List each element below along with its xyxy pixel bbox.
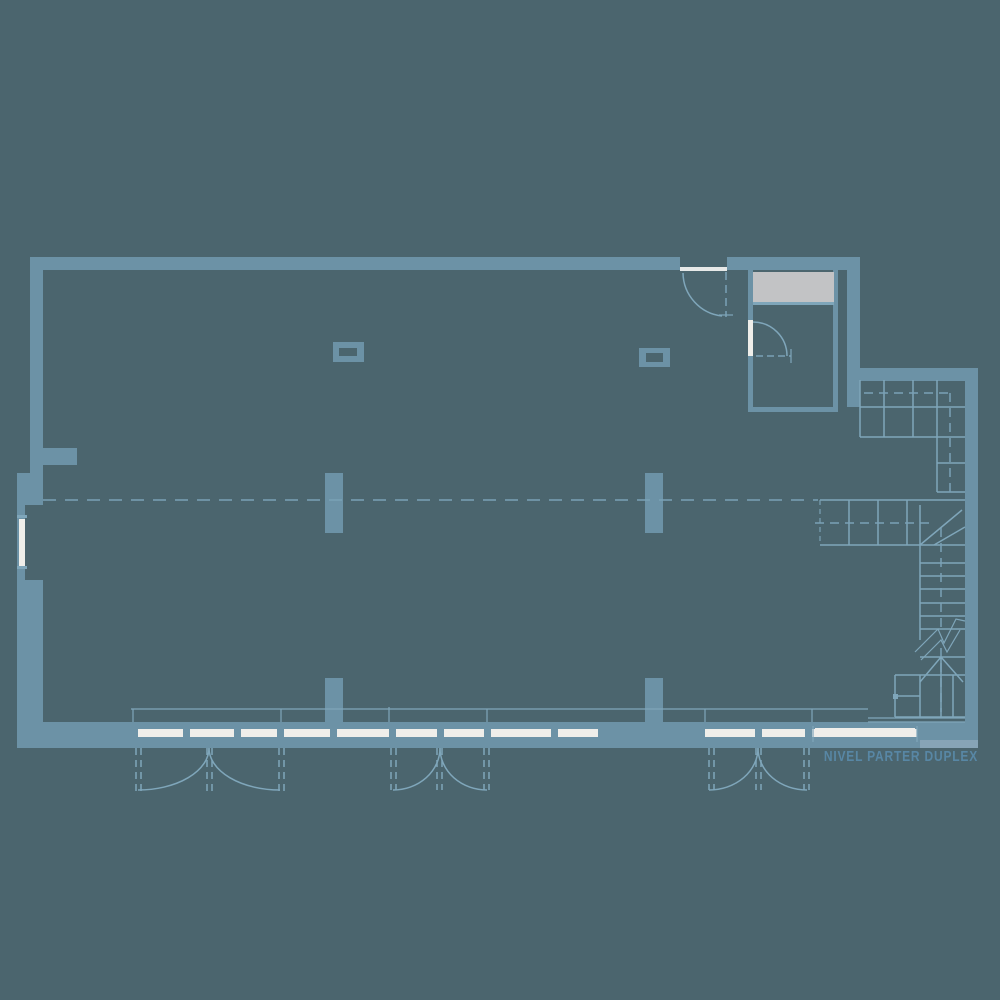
door-swing-arc [709,748,758,790]
door-swing-arc [683,273,722,316]
staircase [815,380,965,722]
stair-lower-winders [920,657,965,717]
stair-break-line [915,619,965,652]
facade-door-arcs [138,748,807,790]
level-label: NIVEL PARTER DUPLEX [756,748,978,765]
door-swing-arc [753,322,787,356]
door-swing-arc [393,748,440,790]
floor-plan-canvas: NIVEL PARTER DUPLEX [0,0,1000,1000]
top-entrance-door [683,272,733,317]
bathroom-door [753,322,791,363]
plan-linework [0,0,1000,1000]
stair-vertical-run [920,545,965,640]
stair-landing-node [893,694,898,699]
stair-landing [895,675,965,717]
door-swing-arc [138,748,209,790]
stair-bottom-edge [868,718,965,722]
door-swing-arc [440,748,487,790]
br-window-glass [815,728,915,737]
facade-door-leaves [136,748,809,792]
stair-winders-turn [920,505,965,545]
door-swing-arc [209,748,280,790]
